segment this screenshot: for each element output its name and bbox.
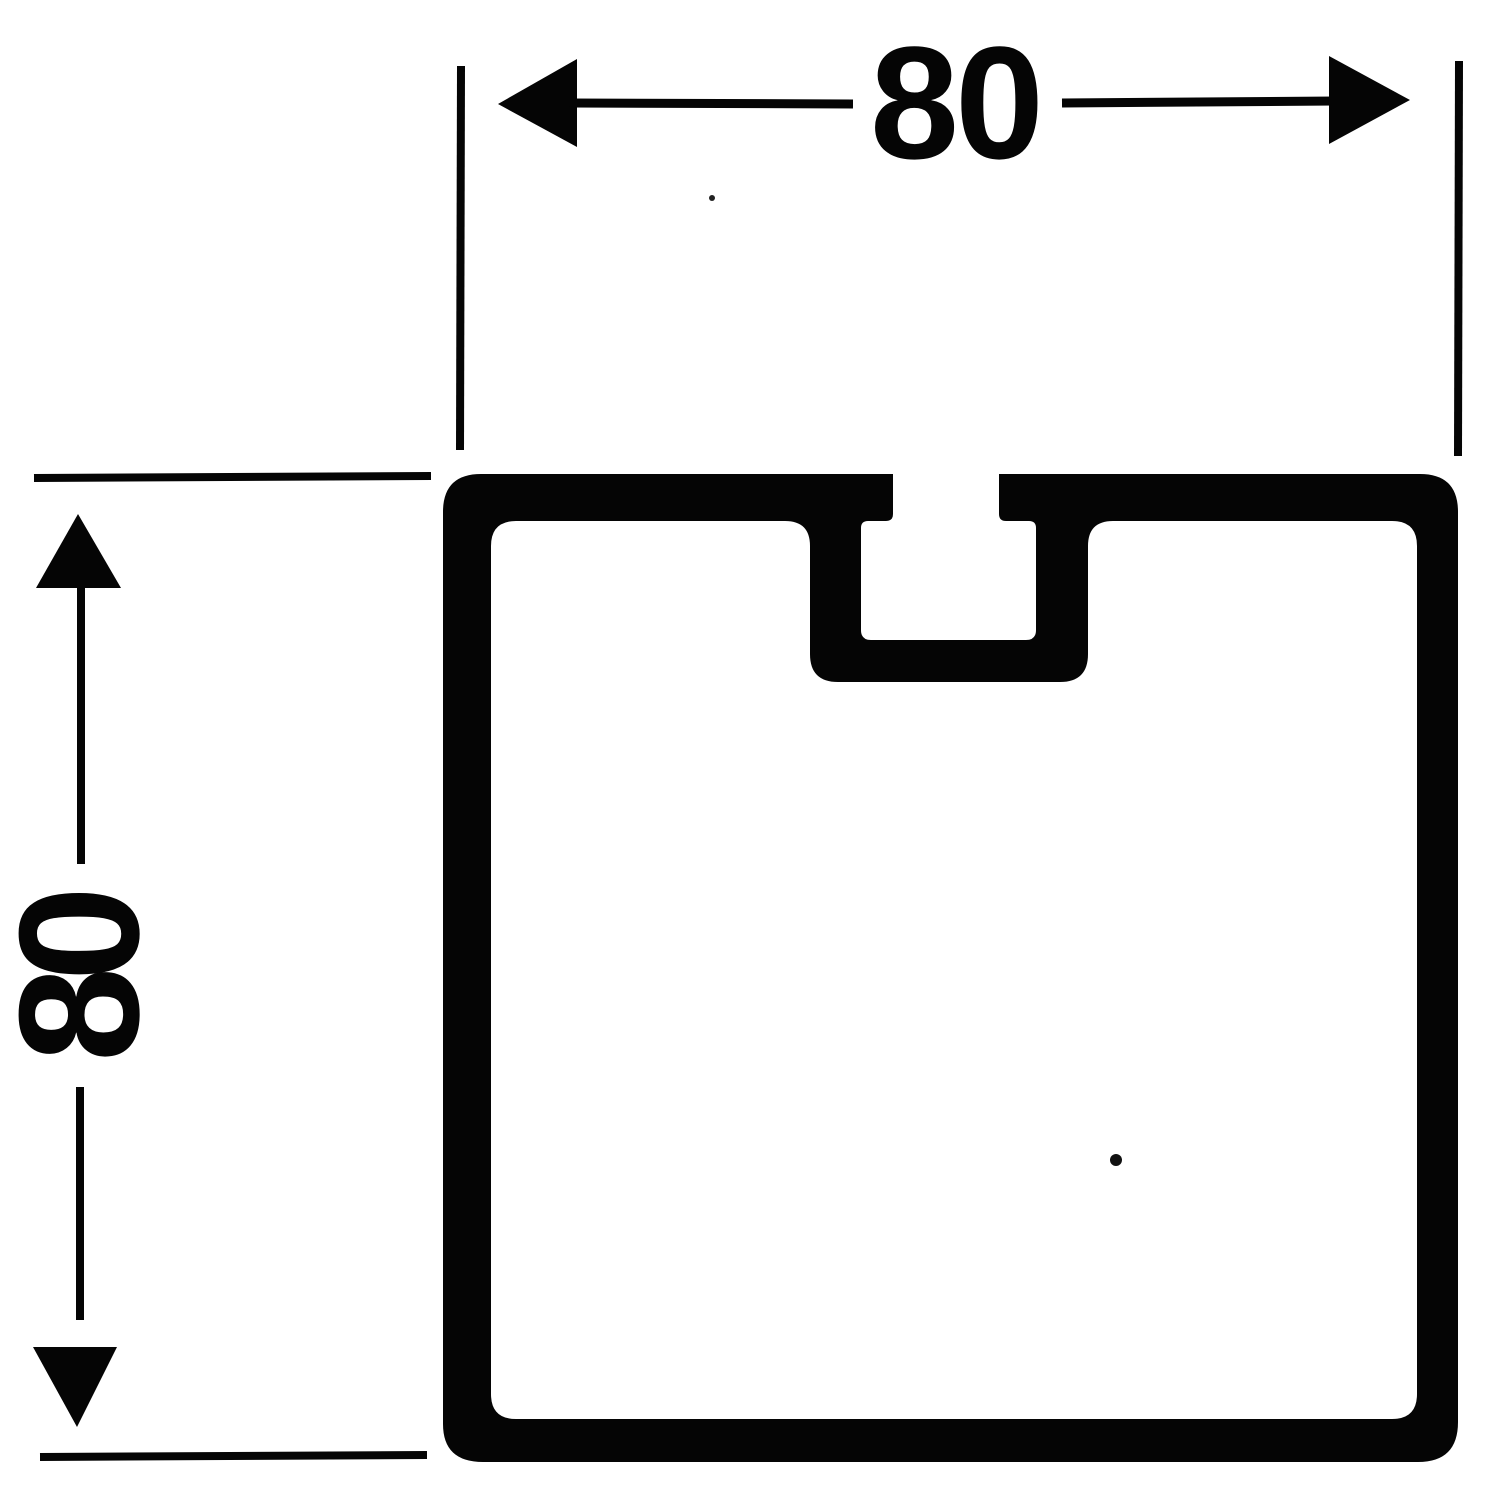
svg-text:80: 80 bbox=[870, 13, 1044, 192]
svg-text:80: 80 bbox=[0, 886, 175, 1062]
